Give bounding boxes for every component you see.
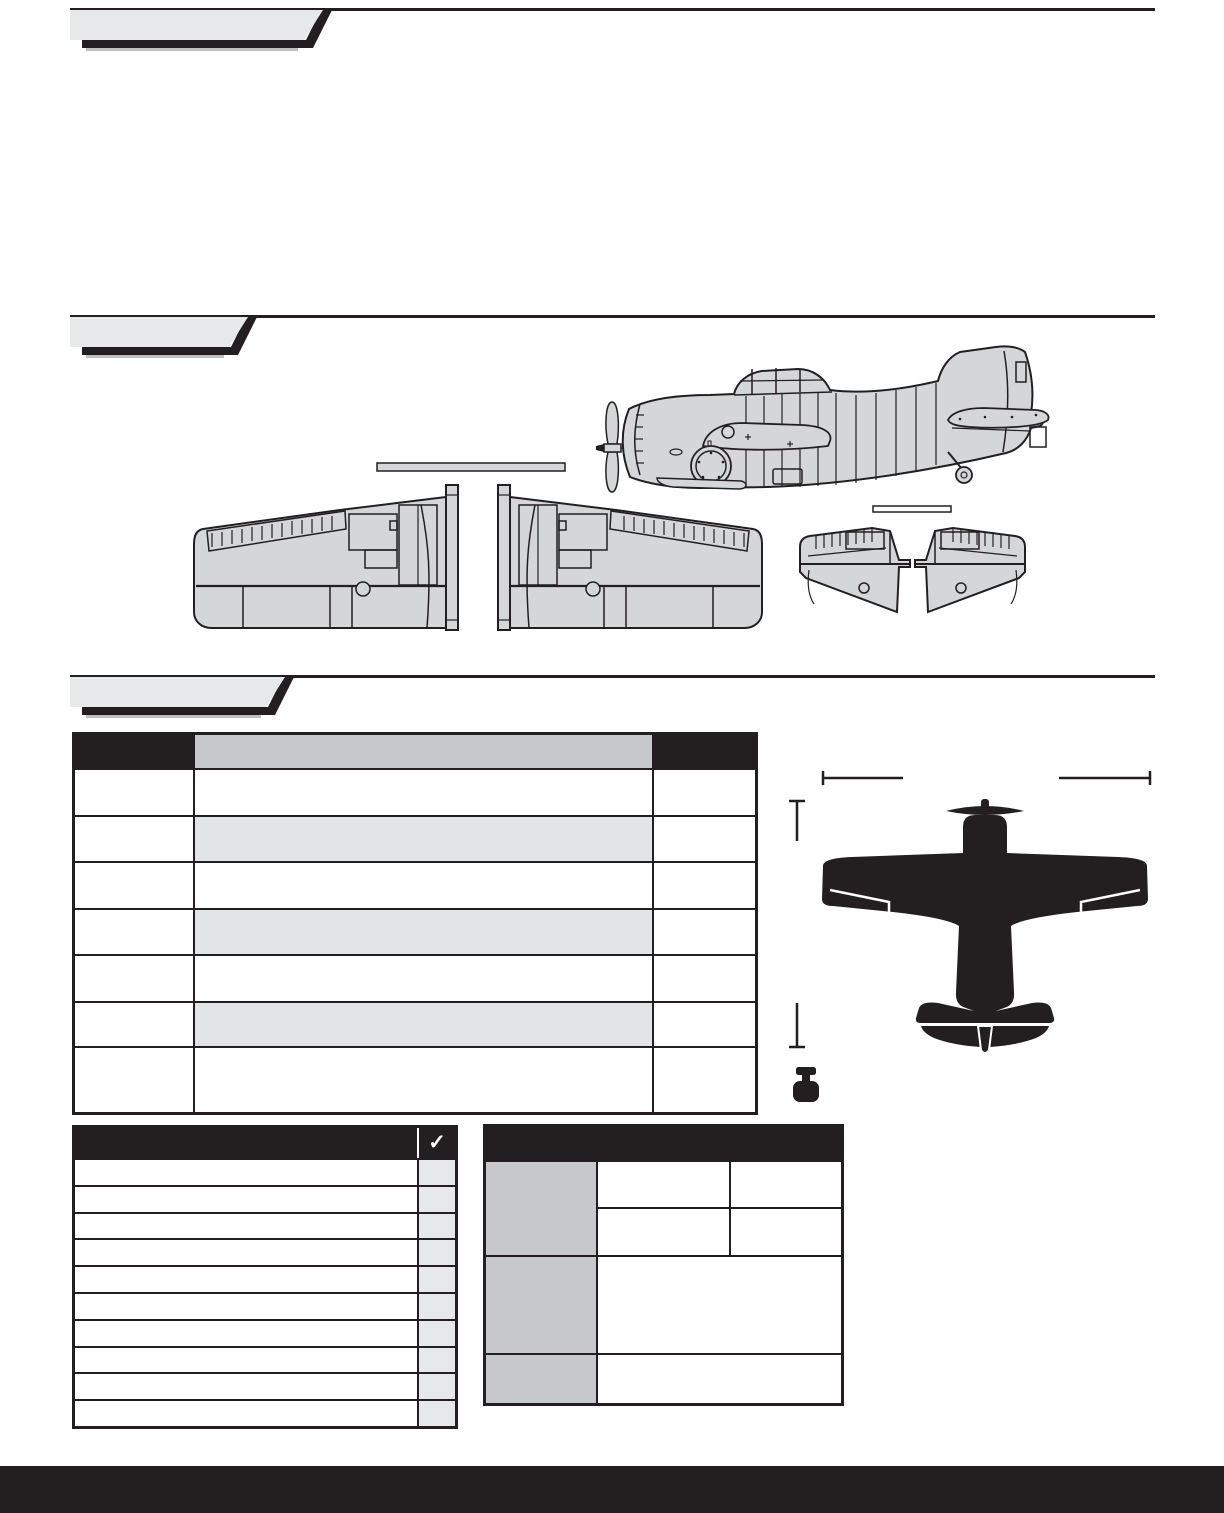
airplane-silhouette-diagram: [770, 755, 1170, 1110]
propeller-blade-bottom: [606, 452, 618, 492]
info-sub-cell: [731, 1209, 841, 1255]
spec-cell-value: [193, 770, 654, 815]
checkmark-icon: ✓: [419, 1128, 455, 1158]
checklist-checkbox-cell: [417, 1374, 455, 1399]
spec-cell-label: [75, 910, 193, 955]
checklist-item-label: [75, 1240, 417, 1265]
checklist-row: [75, 1319, 455, 1346]
spec-header-col3: [654, 735, 755, 768]
spec-table-row: [75, 908, 755, 955]
info-table-header: [486, 1127, 841, 1160]
prop-blades: [946, 806, 1024, 815]
info-sub-row-2: [598, 1207, 841, 1255]
checklist-checkbox-cell: [417, 1240, 455, 1265]
spec-cell-value: [193, 956, 654, 1001]
spec-cell-label: [75, 770, 193, 815]
checklist-row: [75, 1372, 455, 1399]
airplane-parts-diagram: [180, 340, 1170, 645]
info-row-3-value: [598, 1355, 841, 1403]
banner-shape-3: [70, 675, 302, 721]
info-table: [483, 1124, 844, 1406]
spec-cell-label: [75, 863, 193, 908]
spec-cell-label: [75, 1048, 193, 1112]
checklist-checkbox-cell: [417, 1267, 455, 1292]
spec-table-row: [75, 1001, 755, 1046]
checklist-row: [75, 1265, 455, 1292]
checklist-checkbox-cell: [417, 1348, 455, 1373]
spec-table-row: [75, 768, 755, 815]
checklist-row: [75, 1399, 455, 1426]
wing-fairing: [703, 423, 830, 450]
spec-table-row: [75, 954, 755, 1001]
checklist-row: [75, 1212, 455, 1239]
checklist-item-label: [75, 1321, 417, 1346]
checklist-item-label: [75, 1187, 417, 1212]
spec-table-row: [75, 815, 755, 862]
info-sub-cell: [598, 1209, 731, 1255]
propeller-blade-top: [606, 402, 618, 444]
left-stab-half: [800, 528, 910, 612]
section-banner-1: [70, 8, 340, 54]
spec-cell-extra: [654, 1003, 755, 1046]
spec-cell-extra: [654, 1048, 755, 1112]
info-sub-row-1: [598, 1162, 841, 1207]
checklist-item-label: [75, 1348, 417, 1373]
info-row-2-value: [598, 1257, 841, 1353]
spec-cell-extra: [654, 817, 755, 862]
checklist-row: [75, 1346, 455, 1373]
right-stab-half: [915, 528, 1025, 612]
spec-cell-label: [75, 956, 193, 1001]
spec-cell-extra: [654, 910, 755, 955]
spec-table-body: [75, 768, 755, 1112]
spec-cell-extra: [654, 770, 755, 815]
section-banner-3: [70, 675, 302, 721]
propeller-hub: [604, 444, 621, 452]
cowl: [963, 815, 1007, 853]
checklist-header: ✓: [75, 1128, 455, 1158]
tailwheel: [956, 467, 972, 483]
stab-joiner-rod: [873, 506, 951, 512]
info-row-1-label: [486, 1162, 598, 1255]
spec-cell-value: [193, 863, 654, 908]
checklist-checkbox-cell: [417, 1187, 455, 1212]
checklist-row: [75, 1158, 455, 1185]
checklist-row: [75, 1292, 455, 1319]
info-row-3-label: [486, 1355, 598, 1403]
wingspan-dimension-line: [823, 771, 1150, 785]
wing-joiner-rod: [377, 463, 565, 471]
fuselage-drawing: [596, 346, 1049, 492]
spinner: [596, 444, 604, 452]
checklist-row: [75, 1238, 455, 1265]
checklist-checkbox-cell: [417, 1214, 455, 1239]
spec-table-header: [75, 735, 755, 768]
checklist-item-label: [75, 1374, 417, 1399]
right-wing-panel: [498, 485, 762, 630]
checklist-checkbox-cell: [417, 1294, 455, 1319]
specifications-table: [72, 732, 758, 1115]
left-wing-panel: [194, 485, 458, 630]
spec-header-col2: [193, 735, 654, 768]
checklist-item-label: [75, 1160, 417, 1185]
spec-cell-extra: [654, 863, 755, 908]
checklist-item-label: [75, 1401, 417, 1426]
checklist-table: ✓: [72, 1125, 458, 1429]
footer-bar: [0, 1466, 1224, 1513]
spec-header-col1: [75, 735, 193, 768]
spec-cell-label: [75, 817, 193, 862]
banner-shape-1: [70, 8, 340, 54]
spec-cell-value: [193, 910, 654, 955]
spec-cell-extra: [654, 956, 755, 1001]
manual-page: { "colors": { "ink": "#231f20", "banner_…: [0, 0, 1224, 1513]
info-sub-cell: [731, 1162, 841, 1207]
info-row-1: [486, 1160, 841, 1255]
checklist-checkbox-cell: [417, 1401, 455, 1426]
info-sub-cell: [598, 1162, 731, 1207]
info-row-2-label: [486, 1257, 598, 1353]
spec-table-row: [75, 861, 755, 908]
checklist-row: [75, 1185, 455, 1212]
info-row-2: [486, 1255, 841, 1353]
top-view-silhouette: [822, 799, 1148, 1053]
checklist-item-label: [75, 1267, 417, 1292]
info-row-3: [486, 1353, 841, 1403]
weight-icon: [793, 1067, 819, 1102]
spec-cell-value: [193, 1003, 654, 1046]
checklist-checkbox-cell: [417, 1321, 455, 1346]
checklist-item-label: [75, 1294, 417, 1319]
checklist-item-label: [75, 1214, 417, 1239]
rudder-tip: [978, 1026, 992, 1053]
length-dimension-line: [789, 801, 805, 1047]
spec-cell-value: [193, 1048, 654, 1112]
stab-side-view: [948, 408, 1049, 428]
checklist-checkbox-cell: [417, 1160, 455, 1185]
spec-table-row: [75, 1046, 755, 1112]
spec-cell-value: [193, 817, 654, 862]
checklist-body: [75, 1158, 455, 1426]
spec-cell-label: [75, 1003, 193, 1046]
